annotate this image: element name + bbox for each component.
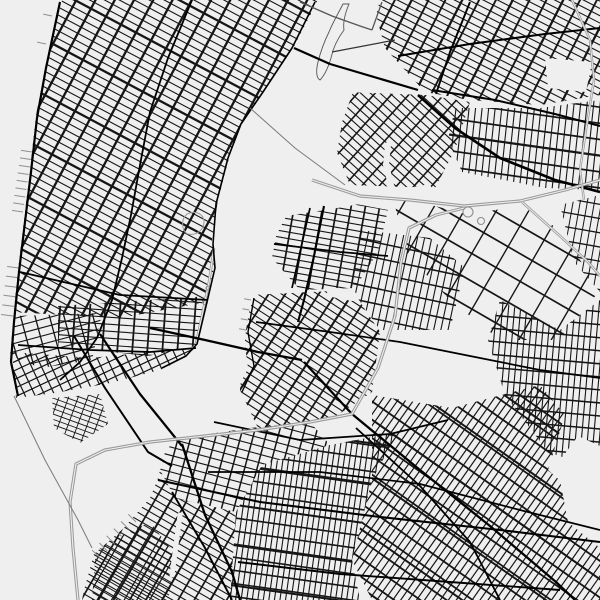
- mccarren-park: [332, 292, 352, 296]
- map-svg: [0, 0, 600, 600]
- street-map-viewport: [0, 0, 600, 600]
- astoria-cemetery: [545, 58, 592, 92]
